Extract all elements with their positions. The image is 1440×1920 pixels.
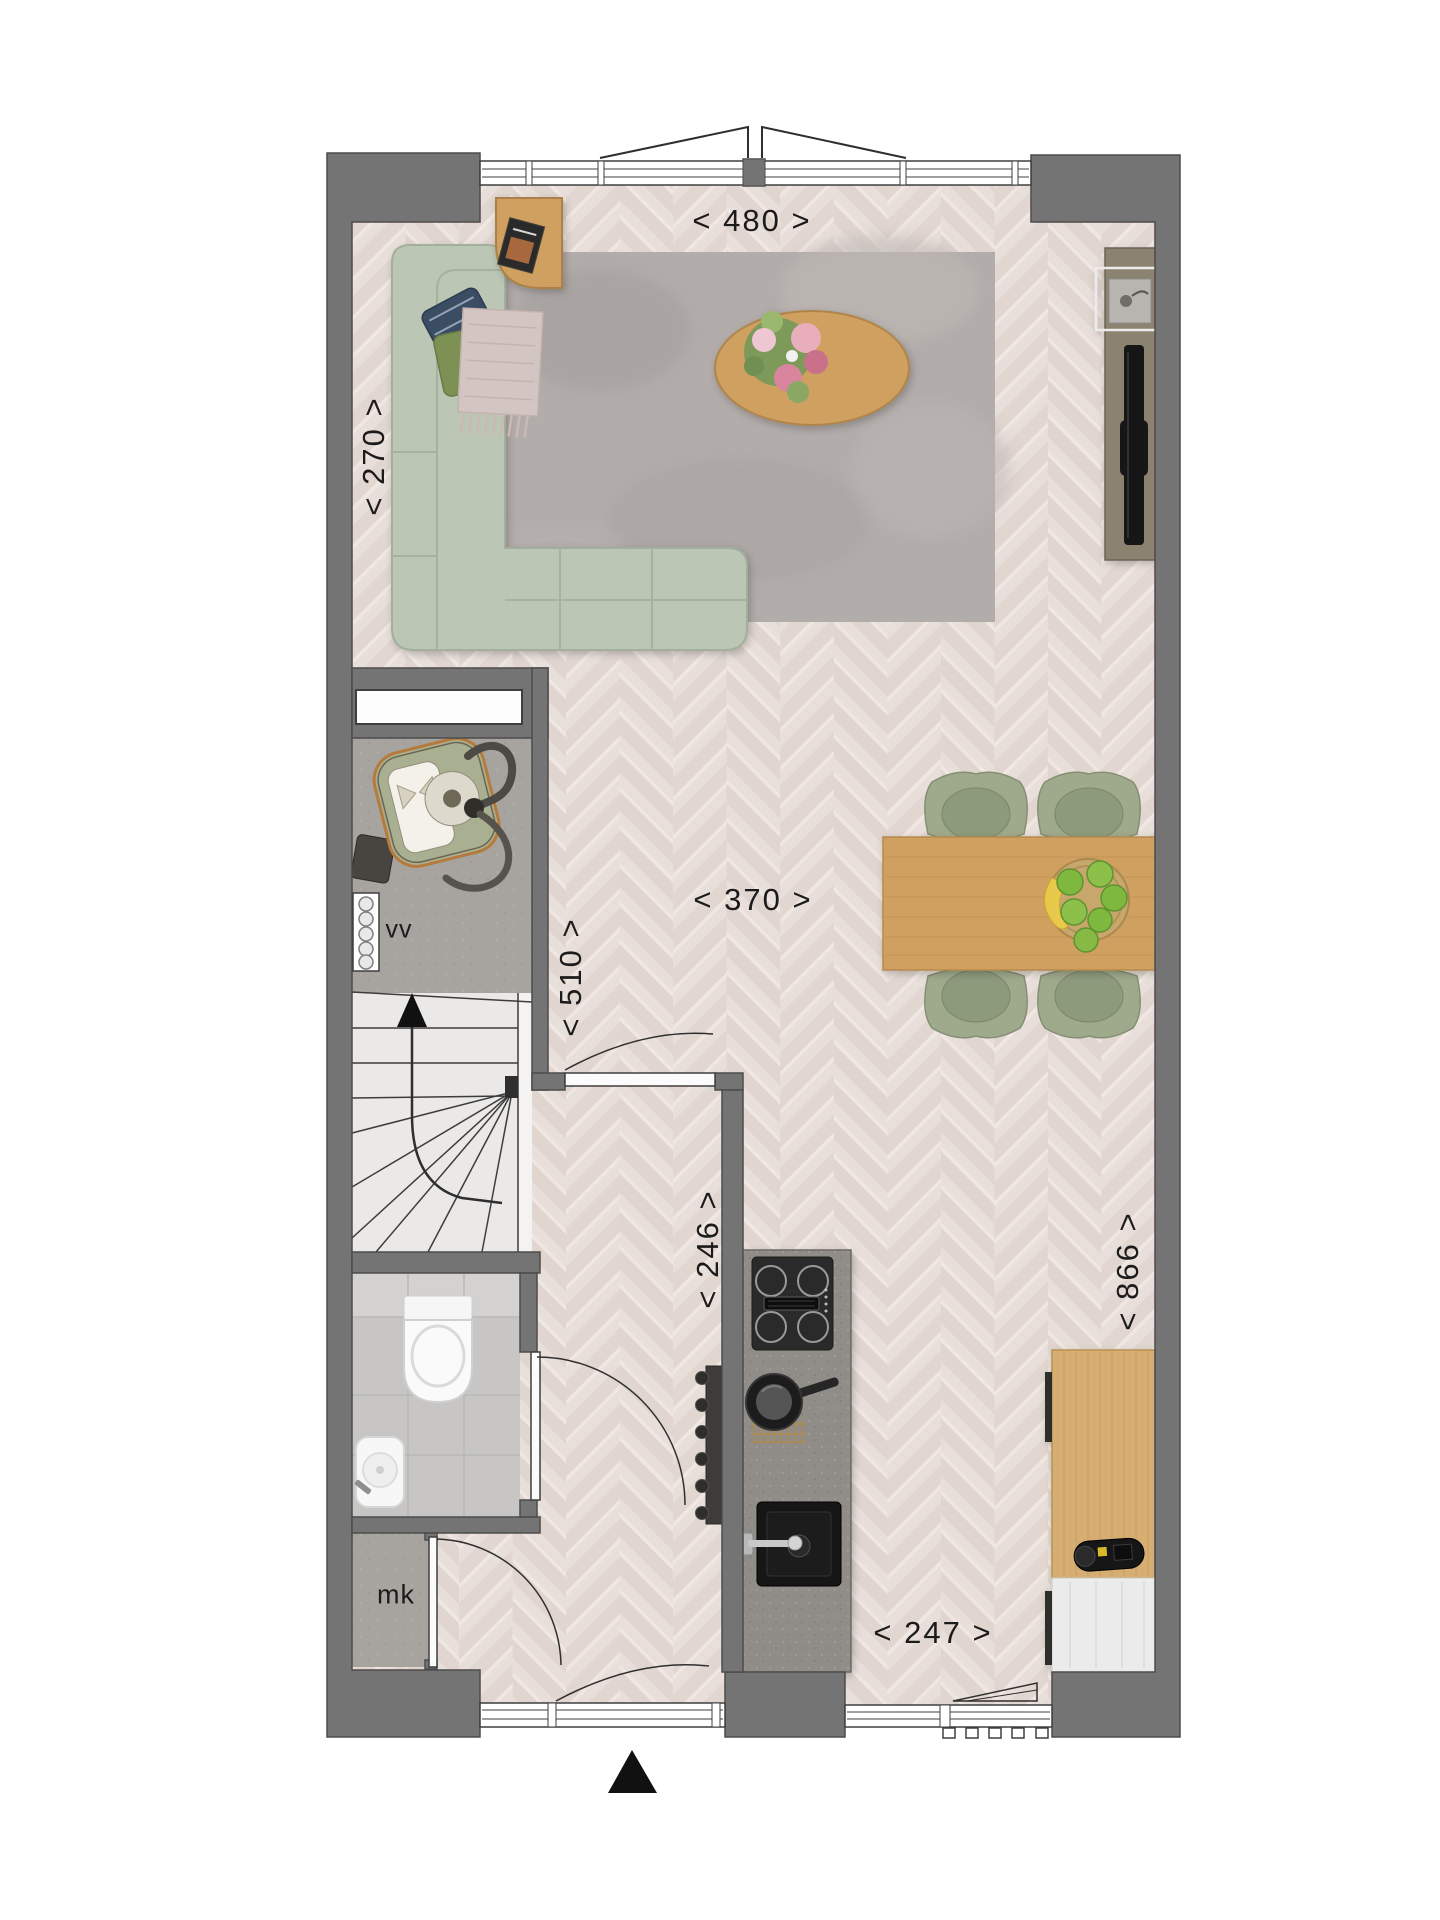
- built-in-closet: [356, 690, 522, 724]
- small-appliance: [1073, 1537, 1145, 1572]
- cabinet-handle: [1045, 1372, 1052, 1442]
- cabinet-handle: [1045, 1591, 1052, 1665]
- vent-grilles: [943, 1728, 1048, 1738]
- dining-chair: [1038, 772, 1140, 842]
- stair-wall: [532, 668, 548, 1090]
- meter-cupboard-floor: [352, 1533, 429, 1667]
- washbasin: [354, 1437, 404, 1507]
- toilet-top-wall: [352, 1252, 540, 1273]
- floorplan-page: < 480 > < 270 > < 370 > < 510 > < 246 > …: [0, 0, 1440, 1920]
- top-window: [480, 159, 1031, 186]
- induction-hob: [752, 1257, 833, 1350]
- side-table: [496, 198, 562, 288]
- dining-chair: [925, 772, 1027, 842]
- floorplan-canvas: [0, 0, 1440, 1920]
- toilet-bottom-wall: [352, 1517, 540, 1533]
- north-arrow-icon: [608, 1750, 657, 1793]
- tv-cabinet: [1096, 248, 1158, 560]
- stair-newel-post: [505, 1076, 518, 1098]
- kitchen-counter: [1045, 1350, 1155, 1672]
- kitchen-island: [740, 1250, 851, 1672]
- dining-chair: [1038, 968, 1140, 1038]
- kitchen-wall: [722, 1090, 743, 1672]
- staircase: [352, 992, 532, 1252]
- door-jamb: [532, 1073, 565, 1090]
- french-doors: [600, 127, 906, 158]
- bottom-center-wall: [725, 1672, 845, 1737]
- coffee-table: [715, 311, 909, 425]
- door-jamb: [715, 1073, 743, 1090]
- dining-chair: [925, 968, 1027, 1038]
- toilet-right-wall: [520, 1273, 537, 1352]
- heating-manifold: [353, 893, 379, 971]
- toilet-right-wall: [520, 1500, 537, 1517]
- toilet: [404, 1296, 472, 1402]
